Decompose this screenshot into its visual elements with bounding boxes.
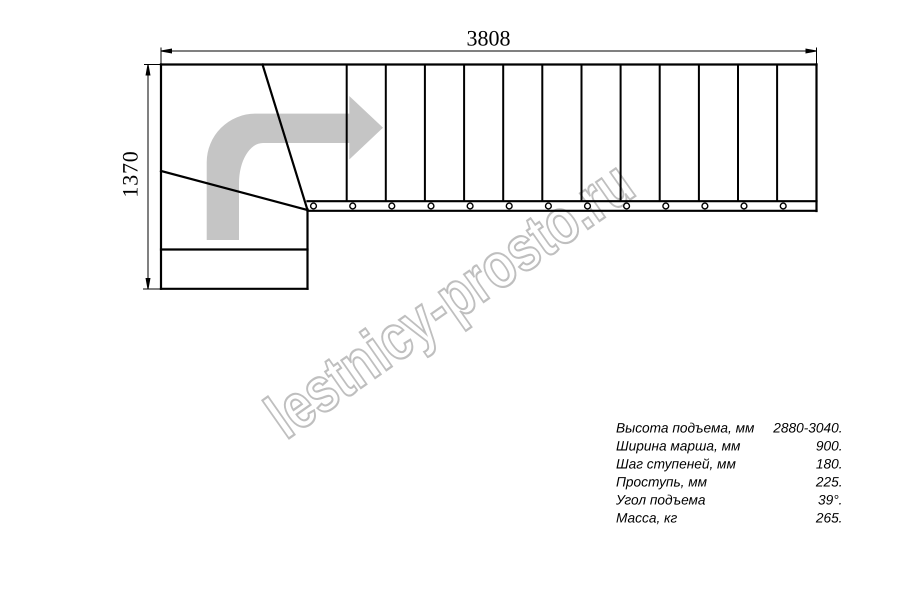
svg-text:Угол подъема: Угол подъема [615,492,706,507]
svg-text:1370: 1370 [118,150,143,197]
svg-text:225.: 225. [815,475,843,490]
svg-text:900.: 900. [816,439,843,454]
svg-text:265.: 265. [815,511,843,526]
svg-text:3808: 3808 [466,25,510,50]
svg-text:Ширина марша, мм: Ширина марша, мм [616,438,741,453]
svg-text:180.: 180. [816,457,843,472]
svg-text:Проступь, мм: Проступь, мм [616,474,708,489]
svg-text:Высота подъема, мм: Высота подъема, мм [616,420,755,435]
svg-text:2880-3040.: 2880-3040. [772,421,842,436]
svg-text:Шаг ступеней, мм: Шаг ступеней, мм [616,456,736,471]
svg-text:39°.: 39°. [818,493,843,508]
svg-text:Масса, кг: Масса, кг [616,510,678,525]
